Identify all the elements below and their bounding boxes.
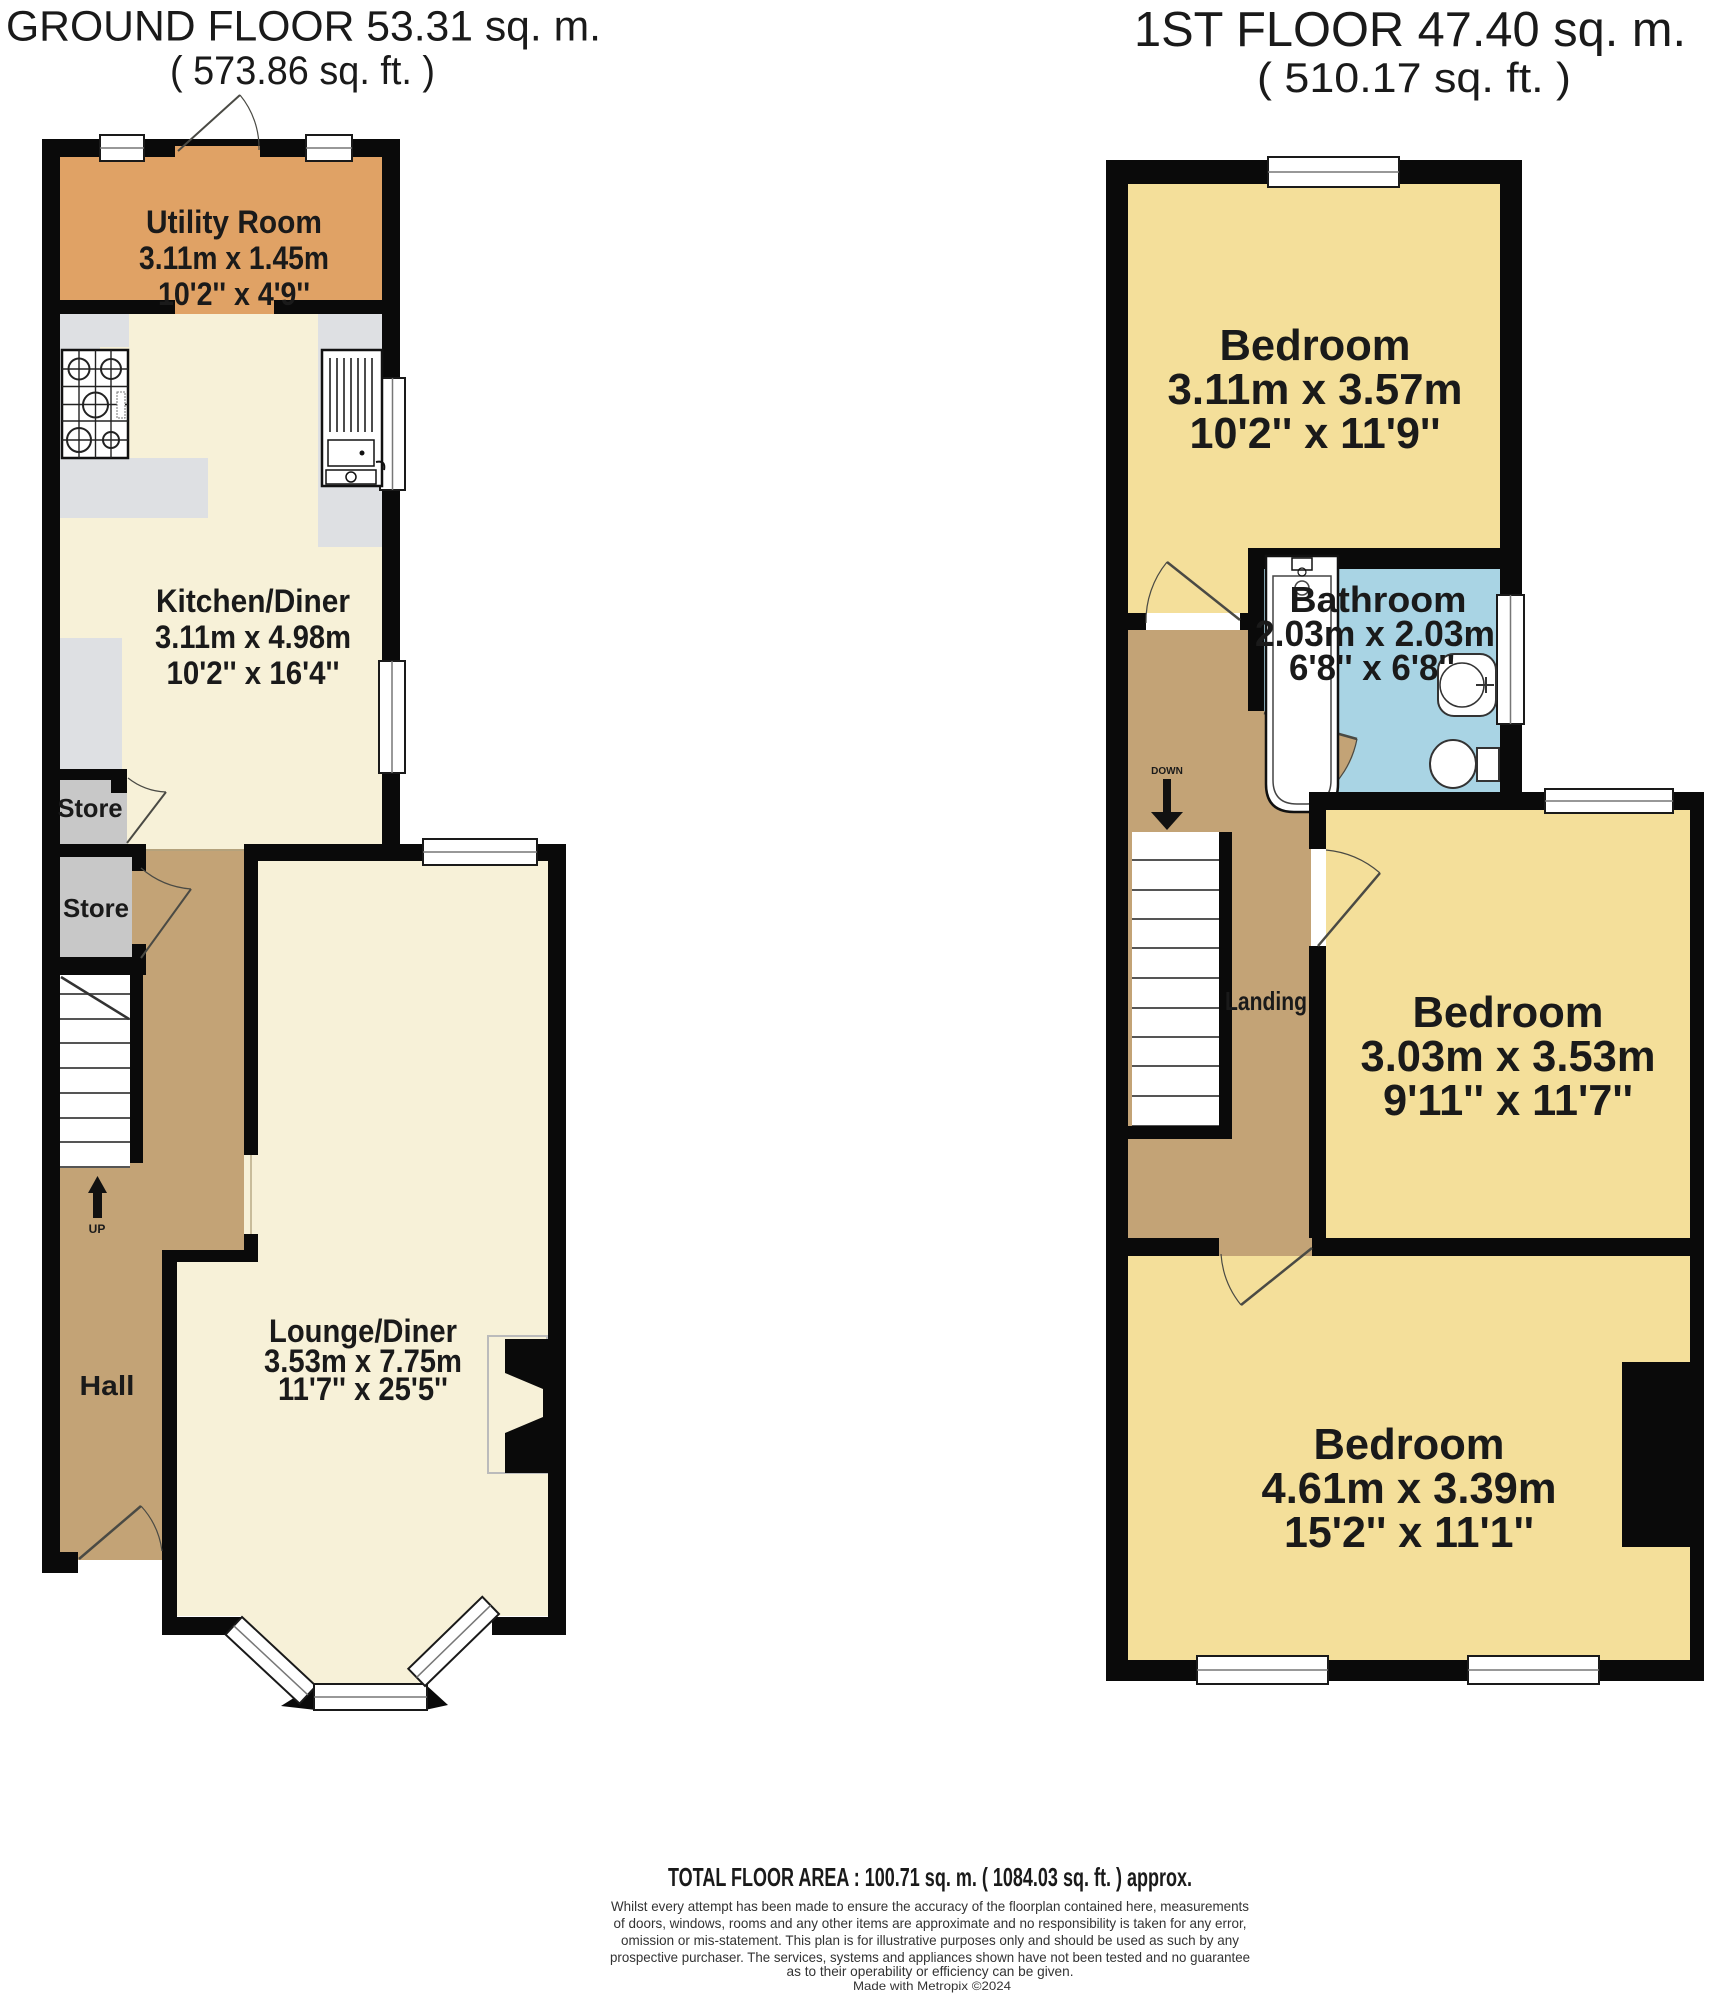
svg-text:3.11m x 4.98m: 3.11m x 4.98m xyxy=(155,619,351,655)
svg-text:3.03m x 3.53m: 3.03m x 3.53m xyxy=(1361,1032,1656,1081)
svg-text:omission or mis-statement. Thi: omission or mis-statement. This plan is … xyxy=(621,1932,1239,1948)
svg-text:Bedroom: Bedroom xyxy=(1413,988,1604,1037)
svg-text:Made with Metropix ©2024: Made with Metropix ©2024 xyxy=(853,1979,1011,1993)
svg-text:Kitchen/Diner: Kitchen/Diner xyxy=(156,583,350,619)
svg-text:DOWN: DOWN xyxy=(1151,766,1183,777)
svg-text:10'2'' x 11'9'': 10'2'' x 11'9'' xyxy=(1190,409,1441,458)
svg-text:Store: Store xyxy=(58,793,123,823)
svg-text:Bedroom: Bedroom xyxy=(1220,321,1411,370)
svg-text:Hall: Hall xyxy=(80,1370,135,1401)
svg-text:as to their operability or eff: as to their operability or efficiency ca… xyxy=(787,1963,1074,1979)
svg-text:TOTAL FLOOR AREA : 100.71 sq.: TOTAL FLOOR AREA : 100.71 sq. m. ( 1084.… xyxy=(668,1862,1192,1892)
svg-text:11'7'' x 25'5'': 11'7'' x 25'5'' xyxy=(278,1371,448,1407)
svg-text:1ST FLOOR 47.40 sq. m.: 1ST FLOOR 47.40 sq. m. xyxy=(1134,3,1686,57)
svg-text:Store: Store xyxy=(63,893,129,923)
svg-text:Whilst every attempt has been: Whilst every attempt has been made to en… xyxy=(611,1898,1249,1914)
svg-text:9'11'' x 11'7'': 9'11'' x 11'7'' xyxy=(1383,1076,1633,1125)
svg-text:GROUND FLOOR 53.31 sq. m.: GROUND FLOOR 53.31 sq. m. xyxy=(6,4,601,51)
svg-text:Landing: Landing xyxy=(1225,986,1307,1016)
svg-text:UP: UP xyxy=(89,1222,106,1236)
svg-text:15'2'' x 11'1'': 15'2'' x 11'1'' xyxy=(1284,1508,1534,1557)
svg-text:10'2'' x 4'9'': 10'2'' x 4'9'' xyxy=(158,276,310,312)
svg-text:of doors, windows, rooms and a: of doors, windows, rooms and any other i… xyxy=(614,1915,1247,1931)
svg-text:( 573.86 sq. ft. ): ( 573.86 sq. ft. ) xyxy=(170,49,435,93)
svg-text:Bedroom: Bedroom xyxy=(1314,1420,1505,1469)
svg-text:( 510.17 sq. ft. ): ( 510.17 sq. ft. ) xyxy=(1257,54,1571,101)
svg-text:3.11m x 1.45m: 3.11m x 1.45m xyxy=(139,240,329,276)
svg-text:6'8'' x 6'8'': 6'8'' x 6'8'' xyxy=(1289,647,1455,688)
svg-text:Utility Room: Utility Room xyxy=(146,204,322,240)
svg-text:3.11m x 3.57m: 3.11m x 3.57m xyxy=(1168,365,1463,414)
svg-text:10'2'' x 16'4'': 10'2'' x 16'4'' xyxy=(167,655,340,691)
svg-text:4.61m x 3.39m: 4.61m x 3.39m xyxy=(1262,1464,1557,1513)
